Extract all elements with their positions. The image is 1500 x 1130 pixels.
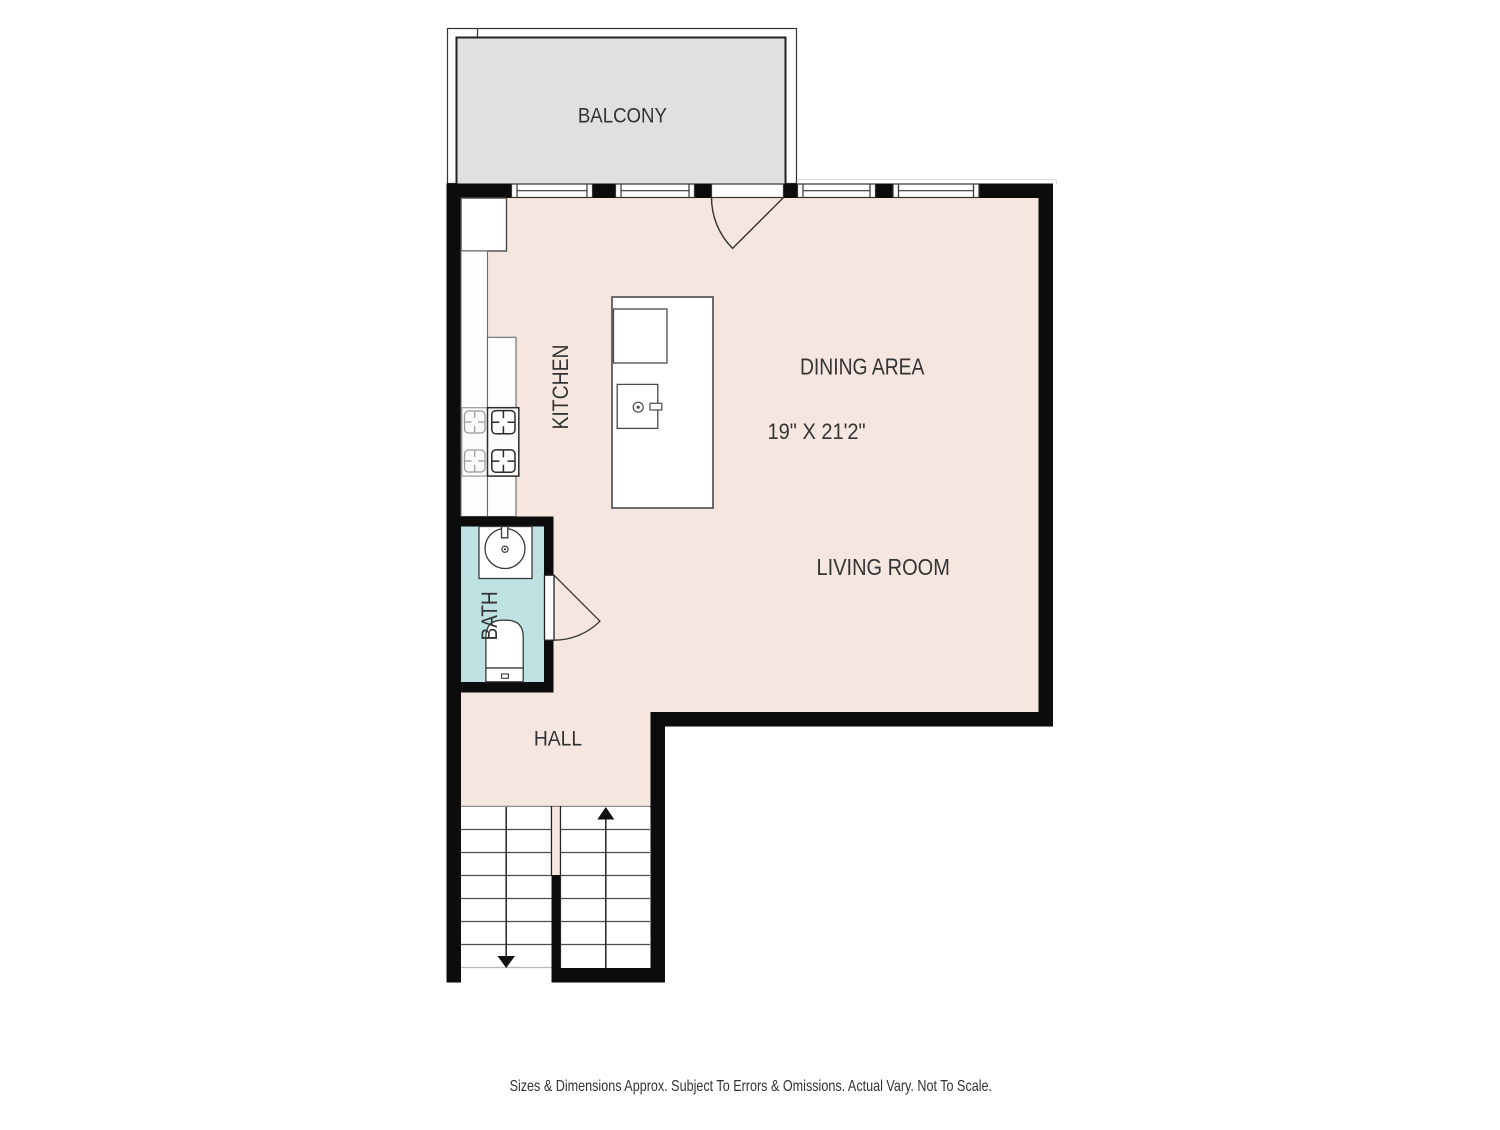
svg-text:BATH: BATH [478, 591, 503, 640]
svg-text:Sizes & Dimensions Approx. Sub: Sizes & Dimensions Approx. Subject To Er… [510, 1077, 992, 1095]
svg-text:BALCONY: BALCONY [578, 104, 667, 127]
svg-text:HALL: HALL [534, 727, 582, 751]
svg-text:LIVING ROOM: LIVING ROOM [817, 554, 950, 581]
svg-text:19" X 21'2": 19" X 21'2" [768, 419, 866, 444]
svg-text:DINING AREA: DINING AREA [800, 355, 925, 380]
svg-text:KITCHEN: KITCHEN [549, 345, 573, 430]
